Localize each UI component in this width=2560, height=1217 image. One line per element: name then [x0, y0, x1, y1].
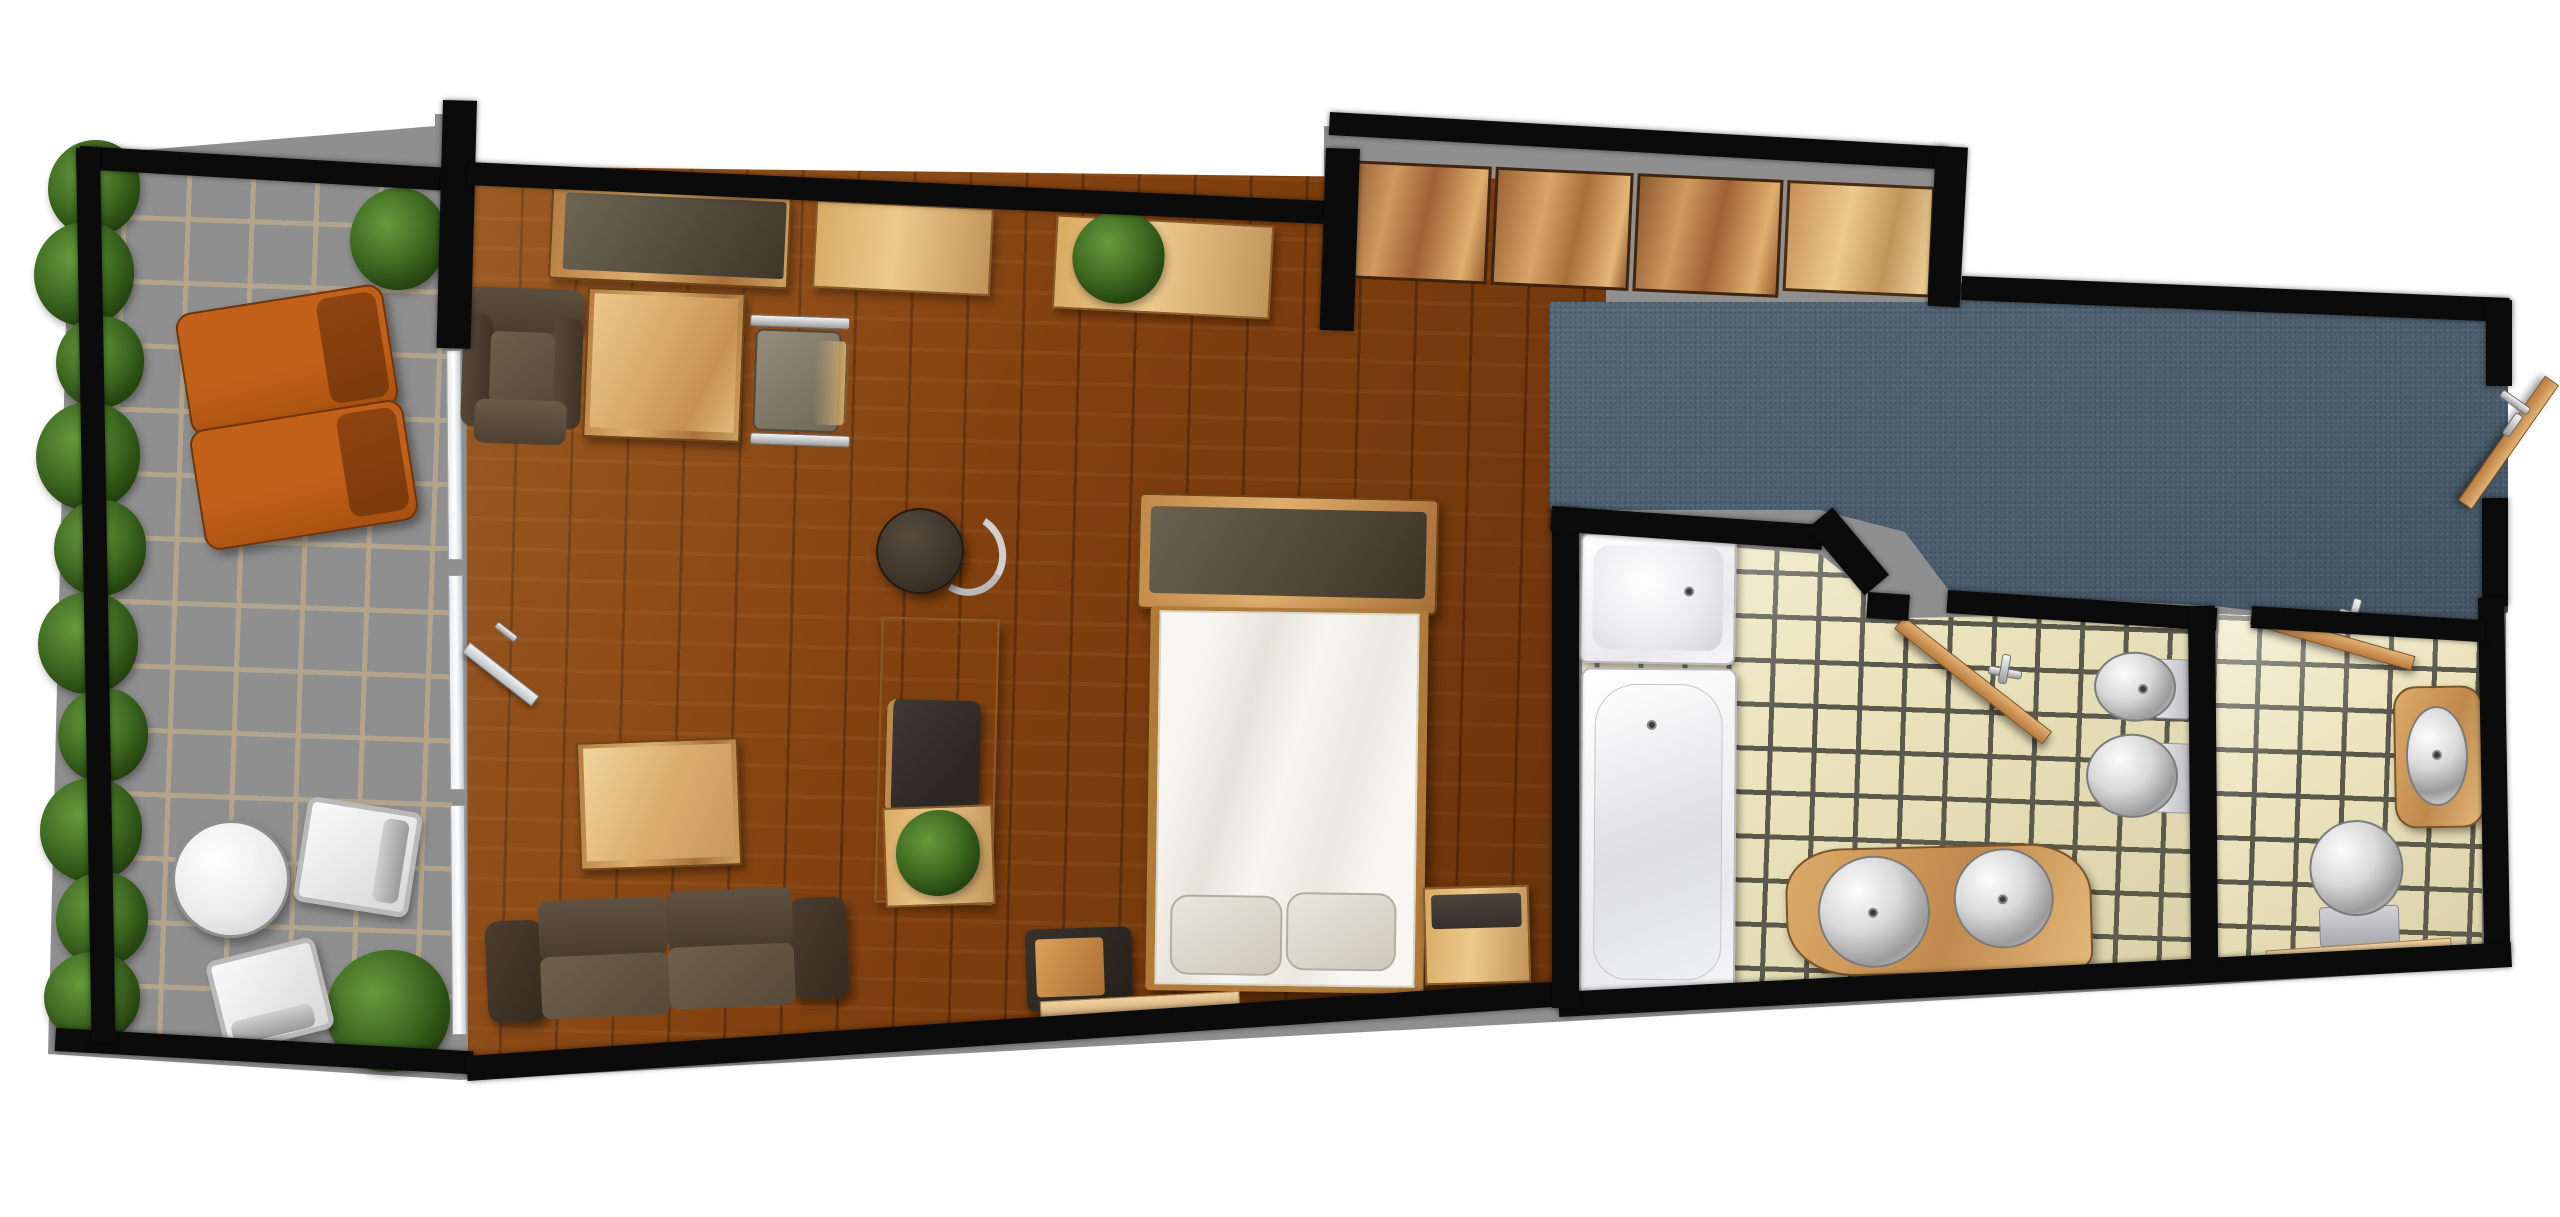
writing-desk — [582, 287, 746, 443]
floor-plan — [0, 0, 2560, 1217]
planter-box — [882, 804, 995, 908]
wc-vanity — [2393, 685, 2485, 829]
wall-bath-door-stub — [1866, 592, 1910, 621]
wall-shelf-plant — [1052, 214, 1275, 319]
sofa — [483, 888, 850, 1028]
pillow-right — [1286, 892, 1397, 972]
wall-closet-left-stub — [1320, 148, 1360, 331]
wall-right-pillar — [2482, 498, 2508, 606]
wall-right-upper — [2486, 300, 2512, 386]
wall-hung-bidet — [2093, 650, 2194, 727]
closet-door-4 — [1783, 180, 1936, 298]
wall-shelf — [812, 200, 994, 297]
wall-terrace-living-stub — [437, 100, 477, 349]
sideboard-dark-top — [548, 187, 792, 290]
coffee-table — [576, 737, 742, 871]
dresser-chair — [885, 699, 982, 815]
armchair — [459, 286, 585, 452]
closet-door-3 — [1632, 173, 1783, 298]
desk-chair — [742, 314, 861, 450]
wc-toilet — [2308, 818, 2408, 951]
terrace-chair-1 — [292, 796, 423, 919]
closet-door-2 — [1490, 167, 1633, 291]
headboard-panel — [1149, 506, 1427, 599]
bathtub — [1579, 667, 1737, 998]
terrace-shrub-top — [350, 188, 446, 290]
nightstand-right — [1423, 885, 1532, 986]
wall-bath-wc-divider — [2188, 606, 2218, 964]
pillow-left — [1170, 894, 1283, 976]
wall-hung-toilet — [2084, 732, 2195, 824]
terrace-table — [172, 820, 290, 938]
shower-tray — [1579, 533, 1737, 666]
bathroom-vanity — [1784, 842, 2093, 978]
closet-door-1 — [1341, 160, 1492, 285]
wall-bedroom-bath-divider — [1552, 508, 1579, 1008]
